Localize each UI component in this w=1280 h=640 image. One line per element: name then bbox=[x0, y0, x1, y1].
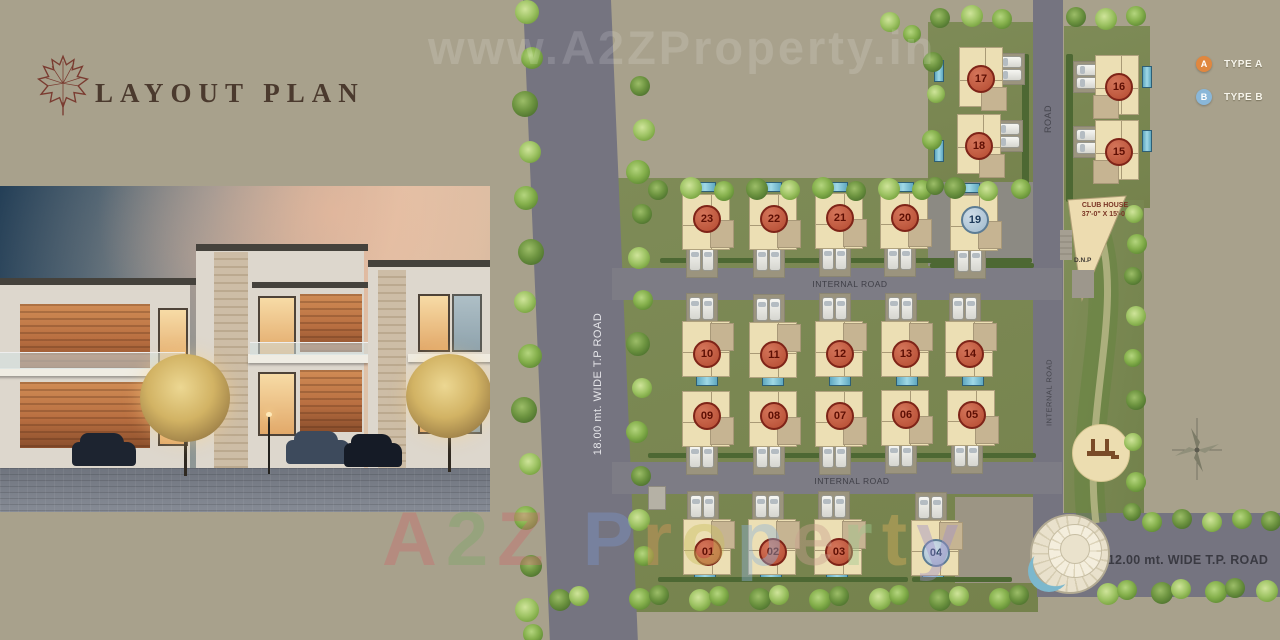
tree-icon bbox=[1127, 234, 1147, 254]
car-icon bbox=[887, 247, 899, 270]
car-icon bbox=[702, 445, 714, 468]
car-icon bbox=[965, 297, 977, 320]
internal-road-1-label: INTERNAL ROAD bbox=[770, 279, 930, 289]
tree-icon bbox=[869, 588, 891, 610]
playground bbox=[1072, 424, 1130, 482]
car-icon bbox=[689, 297, 701, 320]
tree-icon bbox=[630, 76, 650, 96]
unit-number-badge: 19 bbox=[961, 206, 989, 234]
tree-icon bbox=[1205, 581, 1227, 603]
car-icon bbox=[970, 249, 982, 272]
pool bbox=[962, 376, 984, 386]
tree-icon bbox=[518, 344, 542, 368]
tree-icon bbox=[889, 585, 909, 605]
tree-icon bbox=[1124, 433, 1142, 451]
photo-tree bbox=[140, 354, 230, 442]
tree-icon bbox=[1256, 580, 1278, 602]
tree-icon bbox=[1009, 585, 1029, 605]
type-a-dot: A bbox=[1196, 56, 1212, 72]
car-icon bbox=[835, 297, 847, 320]
tree-icon bbox=[714, 181, 734, 201]
unit-number-badge: 20 bbox=[891, 204, 919, 232]
car-icon bbox=[769, 445, 781, 468]
tree-icon bbox=[519, 453, 541, 475]
tree-icon bbox=[1171, 579, 1191, 599]
unit-number-badge: 22 bbox=[760, 205, 788, 233]
tree-icon bbox=[746, 178, 768, 200]
unit-number-badge: 06 bbox=[892, 401, 920, 429]
tree-icon bbox=[749, 588, 771, 610]
car-icon bbox=[769, 248, 781, 271]
pool bbox=[829, 376, 851, 386]
tree-icon bbox=[632, 204, 652, 224]
tree-icon bbox=[649, 585, 669, 605]
unit-22: 22 bbox=[743, 192, 811, 278]
road-18mt-label: 18.00 mt. WIDE T.P ROAD bbox=[592, 304, 604, 464]
unit-13: 13 bbox=[875, 291, 943, 377]
tree-icon bbox=[1126, 390, 1146, 410]
tree-icon bbox=[1225, 578, 1245, 598]
car-icon bbox=[702, 297, 714, 320]
car-icon bbox=[954, 444, 966, 467]
unit-number-badge: 16 bbox=[1105, 73, 1133, 101]
tree-icon bbox=[812, 177, 834, 199]
tree-icon bbox=[1066, 7, 1086, 27]
tree-icon bbox=[809, 589, 831, 611]
tree-icon bbox=[689, 589, 711, 611]
road-north-label: ROAD bbox=[1043, 79, 1053, 159]
tree-icon bbox=[633, 290, 653, 310]
unit-07: 07 bbox=[809, 389, 877, 475]
pool bbox=[696, 376, 718, 386]
watermark-top: www.A2ZProperty.in bbox=[428, 20, 936, 75]
unit-11: 11 bbox=[743, 292, 811, 378]
tree-icon bbox=[1124, 267, 1142, 285]
unit-number-badge: 13 bbox=[892, 340, 920, 368]
tree-icon bbox=[961, 5, 983, 27]
car-icon bbox=[756, 445, 768, 468]
tree-icon bbox=[709, 586, 729, 606]
unit-06: 06 bbox=[875, 388, 943, 474]
unit-18: 18 bbox=[955, 106, 1023, 192]
pool bbox=[896, 376, 918, 386]
car-icon bbox=[901, 297, 913, 320]
tree-icon bbox=[626, 160, 650, 184]
car-icon bbox=[967, 444, 979, 467]
car-icon bbox=[957, 249, 969, 272]
tree-icon bbox=[829, 586, 849, 606]
tree-icon bbox=[929, 589, 951, 611]
car-icon bbox=[769, 298, 781, 321]
photo-car bbox=[344, 443, 402, 467]
tree-icon bbox=[1151, 582, 1173, 604]
tree-icon bbox=[927, 85, 945, 103]
car-icon bbox=[756, 298, 768, 321]
hero-render-photo bbox=[0, 186, 490, 512]
photo-tree bbox=[406, 354, 490, 438]
tree-icon bbox=[511, 397, 537, 423]
watermark-bottom: A2Z Property bbox=[382, 496, 967, 583]
legend-type-a: A TYPE A bbox=[1196, 56, 1280, 72]
tree-icon bbox=[878, 178, 900, 200]
unit-number-badge: 05 bbox=[958, 401, 986, 429]
unit-number-badge: 09 bbox=[693, 402, 721, 430]
tree-icon bbox=[1123, 503, 1141, 521]
unit-number-badge: 17 bbox=[967, 65, 995, 93]
tree-icon bbox=[680, 177, 702, 199]
unit-number-badge: 11 bbox=[760, 341, 788, 369]
tree-icon bbox=[626, 332, 650, 356]
tree-icon bbox=[1011, 179, 1031, 199]
tree-icon bbox=[1097, 583, 1119, 605]
unit-number-badge: 21 bbox=[826, 204, 854, 232]
unit-number-badge: 12 bbox=[826, 340, 854, 368]
unit-10: 10 bbox=[676, 291, 744, 377]
tree-icon bbox=[989, 588, 1011, 610]
car-icon bbox=[822, 445, 834, 468]
unit-21: 21 bbox=[809, 191, 877, 277]
unit-number-badge: 14 bbox=[956, 340, 984, 368]
tree-icon bbox=[514, 291, 536, 313]
unit-number-badge: 08 bbox=[760, 402, 788, 430]
tree-icon bbox=[1261, 511, 1280, 531]
unit-number-badge: 07 bbox=[826, 402, 854, 430]
car-icon bbox=[689, 248, 701, 271]
unit-number-badge: 15 bbox=[1105, 138, 1133, 166]
pool bbox=[1142, 66, 1152, 88]
car-icon bbox=[822, 247, 834, 270]
car-icon bbox=[888, 444, 900, 467]
tree-icon bbox=[1126, 472, 1146, 492]
tree-icon bbox=[631, 466, 651, 486]
legend-type-b: B TYPE B bbox=[1196, 89, 1280, 105]
tree-icon bbox=[518, 239, 544, 265]
car-icon bbox=[901, 444, 913, 467]
tree-icon bbox=[1142, 512, 1162, 532]
photo-car bbox=[286, 440, 350, 464]
unit-23: 23 bbox=[676, 192, 744, 278]
tree-icon bbox=[926, 177, 944, 195]
unit-number-badge: 18 bbox=[965, 132, 993, 160]
tree-icon bbox=[628, 247, 650, 269]
tree-icon bbox=[780, 180, 800, 200]
tree-icon bbox=[978, 181, 998, 201]
tree-icon bbox=[992, 9, 1012, 29]
tree-icon bbox=[632, 378, 652, 398]
car-icon bbox=[900, 247, 912, 270]
unit-16: 16 bbox=[1071, 47, 1139, 133]
tree-icon bbox=[549, 589, 571, 611]
tree-icon bbox=[1202, 512, 1222, 532]
unit-number-badge: 10 bbox=[693, 340, 721, 368]
internal-road-vertical-label: INTERNAL ROAD bbox=[1045, 350, 1054, 436]
road-12mt-label: 12.00 mt. WIDE T.P. ROAD bbox=[1096, 553, 1280, 567]
compass-icon bbox=[1170, 416, 1224, 482]
car-icon bbox=[952, 297, 964, 320]
tree-icon bbox=[944, 177, 966, 199]
unit-09: 09 bbox=[676, 389, 744, 475]
tree-icon bbox=[523, 624, 543, 640]
circular-plaza bbox=[1030, 514, 1110, 594]
car-icon bbox=[689, 445, 701, 468]
tree-icon bbox=[648, 180, 668, 200]
tree-icon bbox=[1117, 580, 1137, 600]
ramp-label: D.N.P bbox=[1074, 257, 1104, 264]
car-icon bbox=[888, 297, 900, 320]
maple-leaf-logo-icon bbox=[36, 50, 90, 120]
unit-19: 19 bbox=[944, 193, 1012, 279]
unit-08: 08 bbox=[743, 389, 811, 475]
unit-12: 12 bbox=[809, 291, 877, 377]
legend: A TYPE A B TYPE B bbox=[1196, 56, 1280, 122]
unit-14: 14 bbox=[939, 291, 1007, 377]
tree-icon bbox=[519, 141, 541, 163]
pool bbox=[1142, 130, 1152, 152]
photo-car bbox=[72, 442, 136, 466]
tree-icon bbox=[1232, 509, 1252, 529]
unit-number-badge: 23 bbox=[693, 205, 721, 233]
tree-icon bbox=[1124, 349, 1142, 367]
tree-icon bbox=[1095, 8, 1117, 30]
tree-icon bbox=[846, 181, 866, 201]
unit-20: 20 bbox=[874, 191, 942, 277]
tree-icon bbox=[515, 598, 539, 622]
tree-icon bbox=[1126, 6, 1146, 26]
car-icon bbox=[822, 297, 834, 320]
tree-icon bbox=[922, 130, 942, 150]
tree-icon bbox=[949, 586, 969, 606]
tree-icon bbox=[1126, 306, 1146, 326]
car-icon bbox=[835, 247, 847, 270]
tree-icon bbox=[1125, 205, 1143, 223]
type-b-dot: B bbox=[1196, 89, 1212, 105]
unit-05: 05 bbox=[941, 388, 1009, 474]
tree-icon bbox=[512, 91, 538, 117]
car-icon bbox=[835, 445, 847, 468]
plaza-pool bbox=[1028, 550, 1070, 592]
tree-icon bbox=[633, 119, 655, 141]
internal-road-2-label: INTERNAL ROAD bbox=[772, 476, 932, 486]
tree-icon bbox=[626, 421, 648, 443]
tree-icon bbox=[629, 588, 651, 610]
car-icon bbox=[702, 248, 714, 271]
tree-icon bbox=[769, 585, 789, 605]
car-icon bbox=[756, 248, 768, 271]
tree-icon bbox=[569, 586, 589, 606]
layout-plan-page: CLUB HOUSE 37'-0" X 15'-0" D.N.P 18.00 m… bbox=[0, 0, 1280, 640]
tree-icon bbox=[1172, 509, 1192, 529]
tree-icon bbox=[514, 186, 538, 210]
page-title: LAYOUT PLAN bbox=[95, 78, 365, 109]
